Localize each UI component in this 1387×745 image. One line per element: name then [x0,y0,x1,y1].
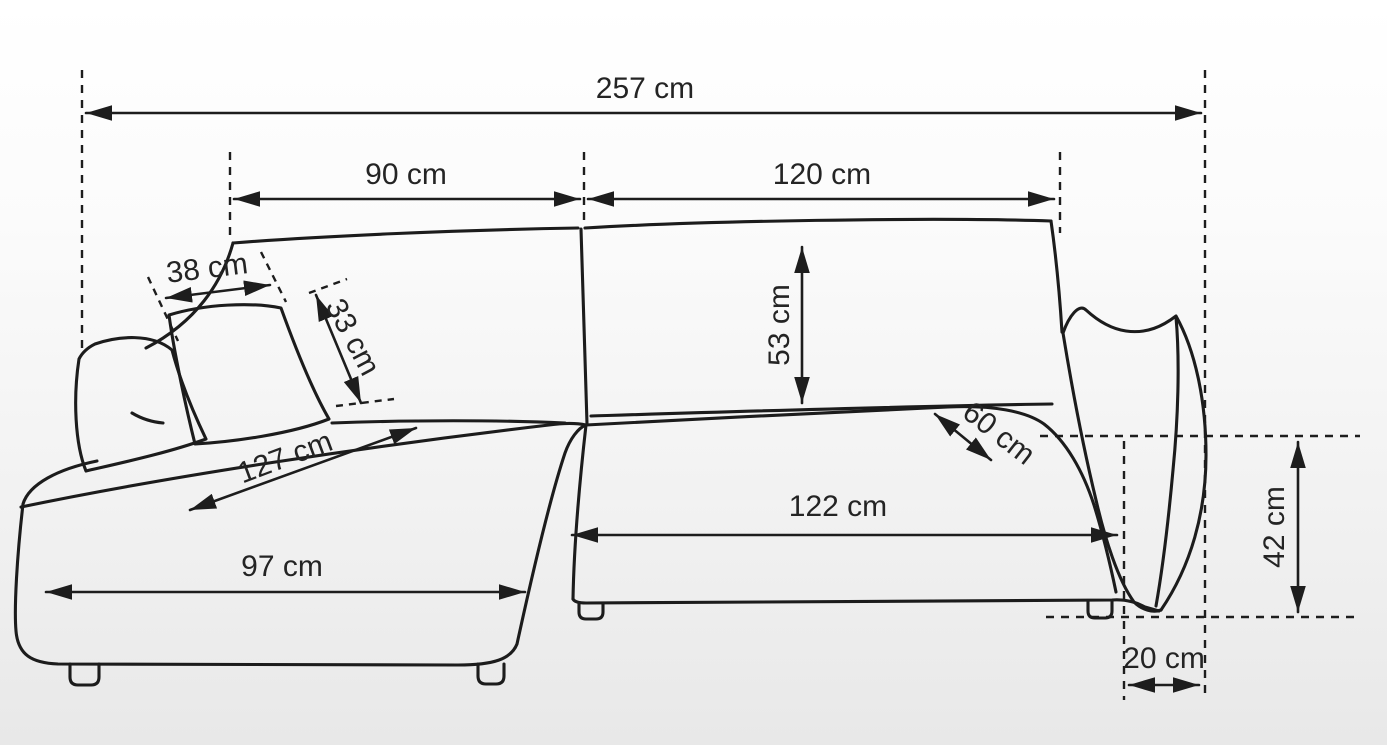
backrest-left-top-edge [233,228,578,243]
chaise-diagonal-label: 127 cm [233,425,337,490]
dimension-overall-width: 257 cm [86,72,1201,113]
dimension-backrest-right-width: 120 cm [588,158,1054,199]
armrest-width-label: 20 cm [1123,642,1205,675]
armrest-height-label: 42 cm [1258,486,1291,568]
seat-left-seam-edge [573,425,586,599]
tick-pillow-height-bottom [336,399,394,406]
seat-leg-right [1088,601,1112,618]
dimension-chaise-diagonal: 127 cm [190,425,416,510]
chaise-seat-back-edge-left [132,413,163,423]
dimension-chaise-front-width: 97 cm [46,550,525,592]
backrest-left-width-label: 90 cm [365,158,447,191]
backrest-center-seam [581,229,587,424]
dimension-armrest-height: 42 cm [1258,442,1298,612]
dimension-seat-front-width: 122 cm [572,490,1117,535]
dimension-pillow-height: 33 cm [316,293,386,403]
dimension-backrest-height: 53 cm [763,247,802,403]
chaise-front-width-label: 97 cm [241,550,323,583]
overall-width-label: 257 cm [596,72,694,105]
sofa-dimension-diagram: 257 cm 90 cm 120 cm 38 cm 33 cm 53 cm 12… [0,0,1387,745]
right-armrest-outer-edge [1063,308,1206,610]
chaise-seat-back-edge-right [332,421,565,423]
backrest-height-label: 53 cm [763,284,796,366]
decor-pillow [169,305,329,444]
backrest-right-width-label: 120 cm [773,158,871,191]
right-armrest-inner-crease [1156,317,1178,606]
dimension-backrest-left-width: 90 cm [234,158,580,199]
seat-bottom-edge [573,599,1159,611]
seat-leg-left [579,603,603,619]
backrest-right-side-edge [1051,221,1062,332]
extension-lines [82,70,1360,700]
chaise-leg-left [70,664,99,685]
chaise-leg-right [478,664,504,684]
dimension-armrest-width: 20 cm [1123,642,1205,685]
pillow-height-label: 33 cm [319,293,386,381]
backrest-right-top-edge [585,219,1051,228]
dimension-pillow-width: 38 cm [165,247,270,298]
tick-pillow-height-top [309,279,347,293]
seat-front-width-label: 122 cm [789,490,887,523]
seat-depth-label: 60 cm [956,395,1041,471]
pillow-width-label: 38 cm [165,247,250,290]
tick-pillow-width-right [261,252,286,302]
